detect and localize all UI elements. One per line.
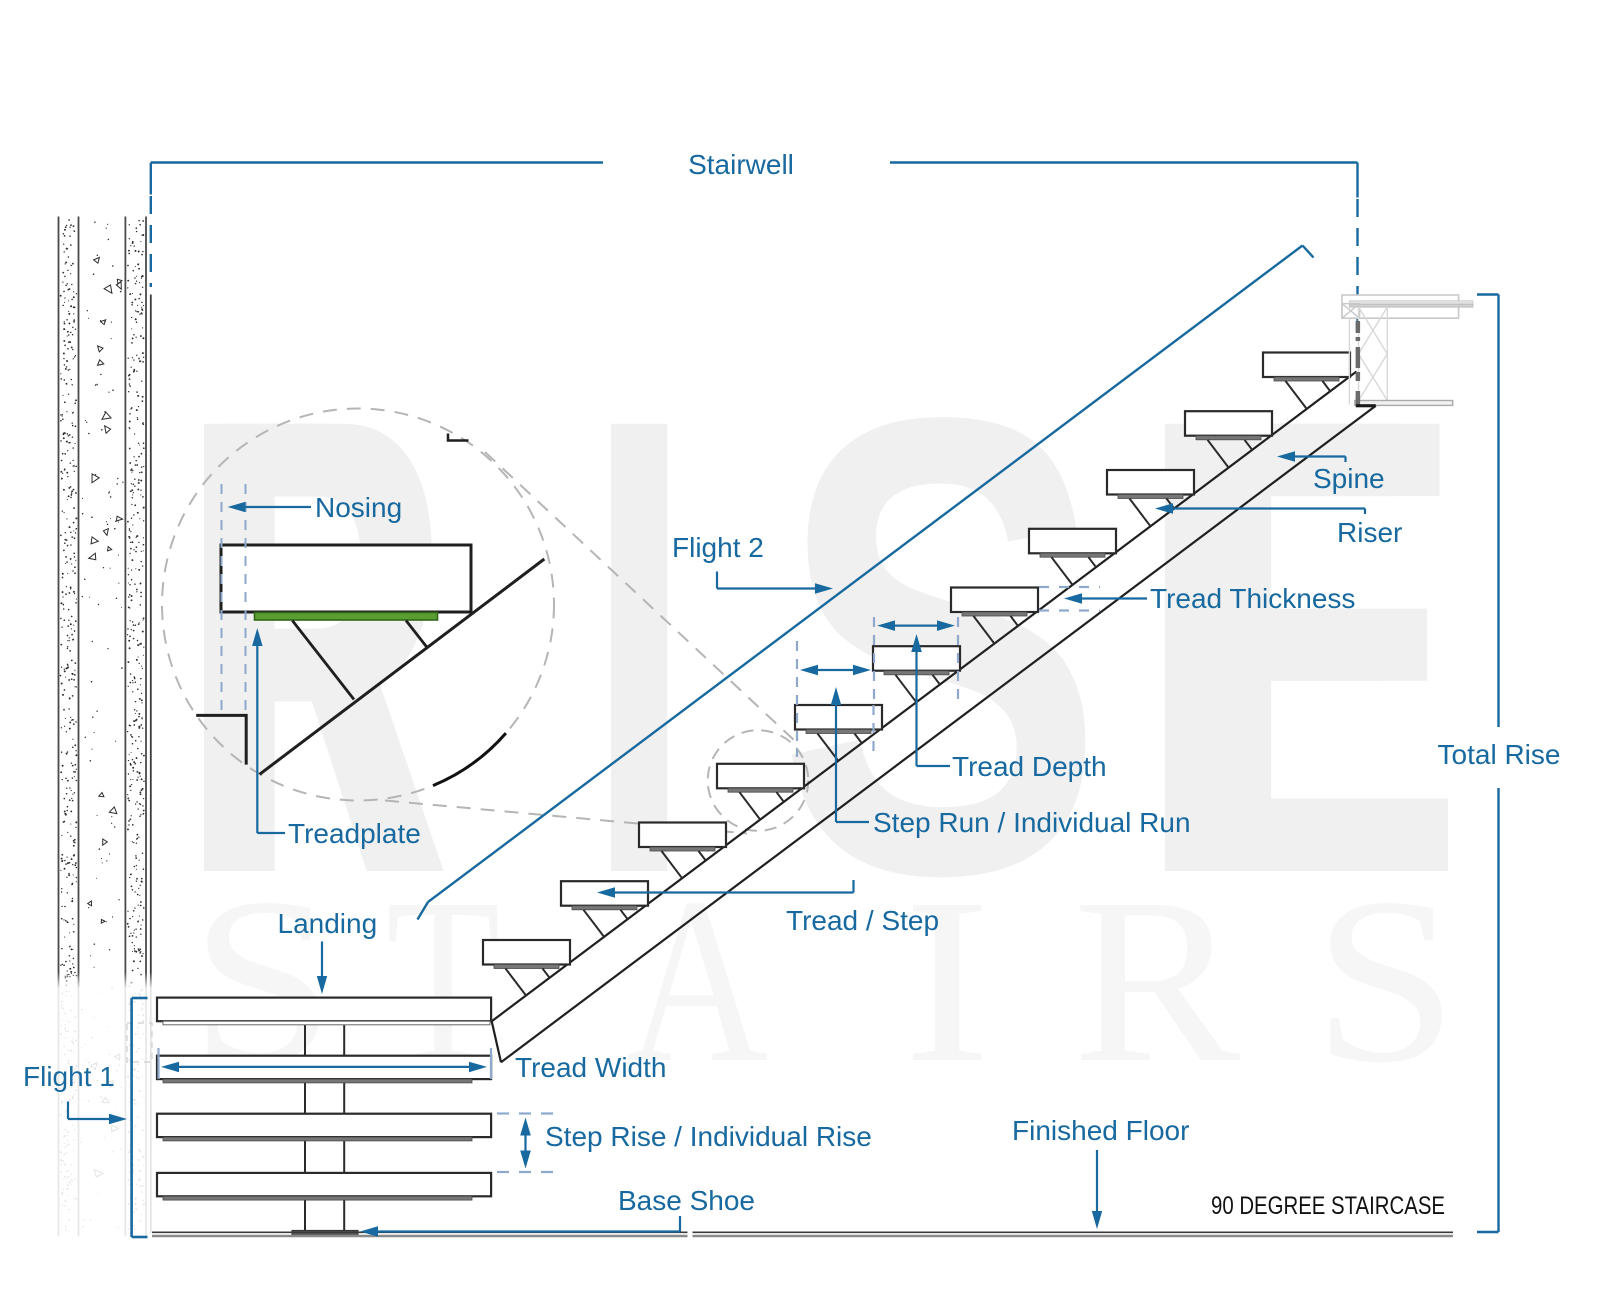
svg-text:S: S	[1313, 849, 1458, 1112]
svg-text:Step Rise / Individual Rise: Step Rise / Individual Rise	[545, 1121, 872, 1152]
svg-text:Tread Width: Tread Width	[515, 1052, 666, 1083]
svg-text:Spine: Spine	[1313, 463, 1385, 494]
svg-text:Step Run / Individual Run: Step Run / Individual Run	[873, 807, 1191, 838]
svg-text:R: R	[1073, 848, 1241, 1111]
svg-text:Base Shoe: Base Shoe	[618, 1185, 755, 1216]
svg-text:Stairwell: Stairwell	[688, 149, 794, 180]
svg-text:Riser: Riser	[1337, 517, 1402, 548]
svg-text:Flight 1: Flight 1	[23, 1061, 115, 1092]
svg-text:Nosing: Nosing	[315, 492, 402, 523]
svg-text:Tread Depth: Tread Depth	[952, 751, 1107, 782]
svg-text:Treadplate: Treadplate	[288, 818, 421, 849]
svg-text:I: I	[904, 849, 991, 1112]
svg-text:90 DEGREE STAIRCASE: 90 DEGREE STAIRCASE	[1211, 1192, 1445, 1220]
svg-text:Total Rise: Total Rise	[1438, 739, 1561, 770]
svg-text:Tread Thickness: Tread Thickness	[1150, 583, 1355, 614]
svg-text:Finished Floor: Finished Floor	[1012, 1115, 1189, 1146]
svg-text:Flight 2: Flight 2	[672, 532, 764, 563]
svg-text:Tread / Step: Tread / Step	[786, 905, 939, 936]
svg-text:Landing: Landing	[278, 908, 378, 939]
